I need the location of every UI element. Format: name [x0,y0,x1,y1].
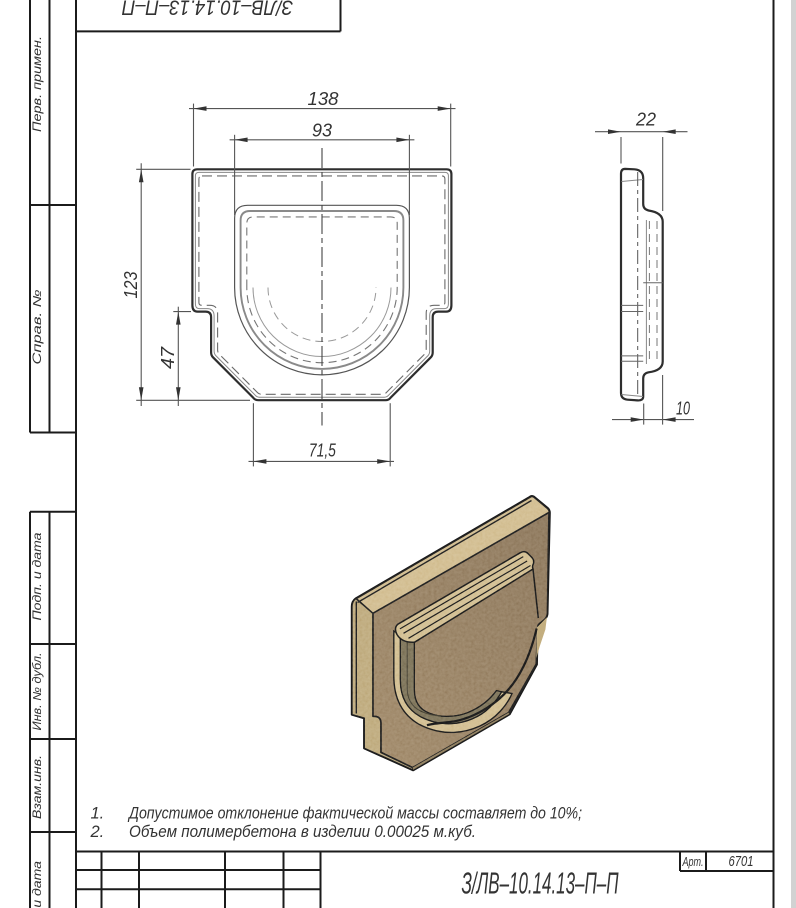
svg-text:22: 22 [635,110,656,130]
svg-text:Подп. и дата: Подп. и дата [32,861,44,908]
svg-text:123: 123 [121,272,141,299]
svg-text:Арт.: Арт. [682,855,704,869]
svg-text:6701: 6701 [729,853,754,870]
svg-text:Подп. и дата: Подп. и дата [32,533,44,621]
svg-text:Взам.инв.: Взам.инв. [32,755,44,819]
svg-text:Перв. примен.: Перв. примен. [32,36,44,132]
svg-text:2.: 2. [90,823,105,841]
svg-text:Допустимое отклонение фактичес: Допустимое отклонение фактической массы … [127,805,582,823]
svg-text:138: 138 [308,89,339,109]
svg-text:10: 10 [676,399,690,419]
svg-text:1.: 1. [91,805,105,823]
svg-text:Справ. №: Справ. № [32,289,44,365]
svg-text:Инв. № дубл.: Инв. № дубл. [32,653,44,731]
svg-text:93: 93 [312,120,332,140]
svg-text:47: 47 [158,346,178,369]
svg-text:З/ЛВ–10.14.13–П–П: З/ЛВ–10.14.13–П–П [121,0,293,19]
svg-text:71,5: 71,5 [309,441,337,461]
svg-text:Объем полимербетона в изделии: Объем полимербетона в изделии 0.00025 м.… [129,823,476,841]
svg-text:З/ЛВ–10.14.13–П–П: З/ЛВ–10.14.13–П–П [462,866,619,901]
